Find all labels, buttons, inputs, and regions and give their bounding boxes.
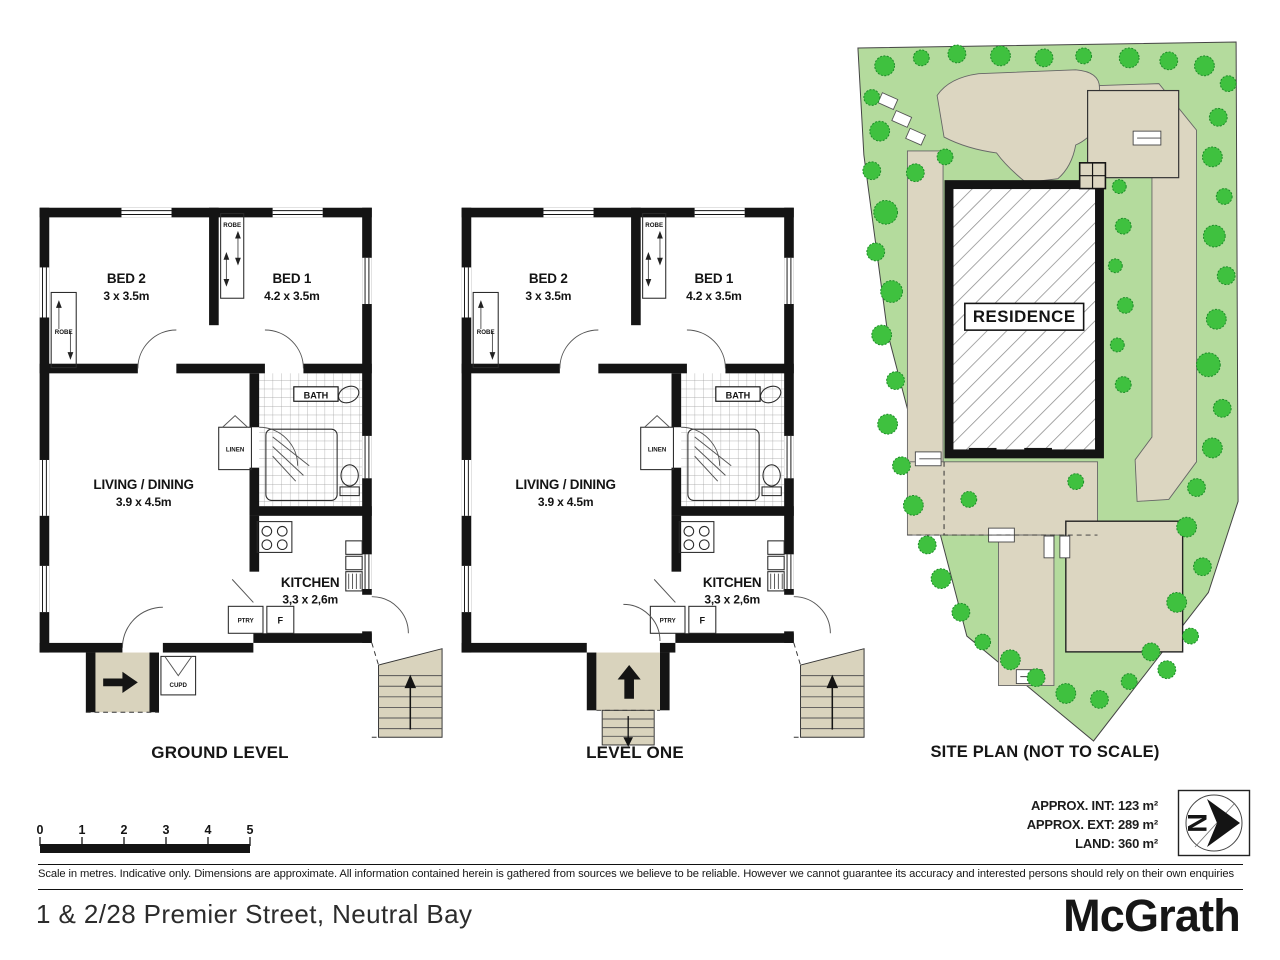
residence-block: RESIDENCE [949, 185, 1099, 454]
north-letter: N [1182, 813, 1212, 833]
living-name: LIVING / DINING [515, 477, 615, 492]
bath-label: BATH [304, 390, 329, 400]
north-compass-icon: N [1177, 789, 1251, 857]
bed1-name: BED 1 [273, 271, 312, 286]
kitchen-name: KITCHEN [281, 575, 340, 590]
site-plan-title: SITE PLAN (NOT TO SCALE) [905, 743, 1185, 762]
bed1-dims: 4.2 x 3.5m [686, 289, 742, 303]
cupboard-label: CUPD [170, 682, 188, 689]
area-internal: APPROX. INT: 123 m² [900, 796, 1158, 815]
bed1-dims: 4.2 x 3.5m [264, 289, 320, 303]
fridge-label: F [700, 616, 706, 626]
bed2-door [560, 330, 599, 369]
scale-tick-2: 2 [121, 823, 128, 837]
robe-left-label: ROBE [55, 329, 73, 336]
living-dims: 3.9 x 4.5m [538, 495, 594, 509]
external-stairs [372, 597, 442, 738]
bed1-door [265, 330, 304, 369]
kitchen-name: KITCHEN [703, 575, 762, 590]
floorplan-page: ROBE ROBE BED 2 3 x 3.5m BED 1 4.2 x 3.5… [0, 0, 1280, 960]
residence-label: RESIDENCE [973, 307, 1076, 326]
ground-level-title: GROUND LEVEL [110, 743, 330, 763]
bed2-door [138, 330, 177, 369]
scale-tick-1: 1 [79, 823, 86, 837]
level-one-floor-plan: ROBE ROBE BED 2 3 x 3.5m BED 1 4.2 x 3.5… [452, 198, 866, 747]
divider-top [38, 864, 1243, 865]
robe-left-label: ROBE [477, 329, 495, 336]
living-dims: 3.9 x 4.5m [116, 495, 172, 509]
site-plan: RESIDENCE [850, 36, 1246, 749]
scale-tick-0: 0 [37, 823, 44, 837]
bed2-name: BED 2 [107, 271, 146, 286]
scale-bar: 0 1 2 3 4 5 [34, 822, 262, 860]
area-external: APPROX. EXT: 289 m² [900, 815, 1158, 834]
kitchen-dims: 3,3 x 2,6m [282, 592, 338, 606]
fridge-label: F [278, 616, 284, 626]
living-name: LIVING / DINING [93, 477, 193, 492]
property-address: 1 & 2/28 Premier Street, Neutral Bay [36, 899, 472, 930]
bed2-dims: 3 x 3.5m [103, 289, 149, 303]
linen-label: LINEN [226, 446, 245, 453]
kitchen-dims: 3,3 x 2,6m [704, 592, 760, 606]
pantry-label: PTRY [238, 618, 254, 625]
bed2-dims: 3 x 3.5m [525, 289, 571, 303]
robe-mid-label: ROBE [645, 222, 663, 229]
mcgrath-logo: McGrath [1063, 890, 1240, 942]
scale-tick-4: 4 [205, 823, 212, 837]
disclaimer-text: Scale in metres. Indicative only. Dimens… [38, 868, 1243, 880]
bed1-name: BED 1 [695, 271, 734, 286]
area-land: LAND: 360 m² [900, 834, 1158, 853]
area-summary: APPROX. INT: 123 m² APPROX. EXT: 289 m² … [900, 796, 1158, 853]
robe-mid-label: ROBE [223, 222, 241, 229]
level-one-title: LEVEL ONE [525, 743, 745, 763]
bath-label: BATH [726, 390, 751, 400]
entry-porch [86, 607, 196, 712]
pantry-label: PTRY [660, 618, 676, 625]
scale-tick-3: 3 [163, 823, 170, 837]
bed2-name: BED 2 [529, 271, 568, 286]
bed1-door [687, 330, 726, 369]
linen-label: LINEN [648, 446, 667, 453]
ground-level-floor-plan: ROBE ROBE BED 2 3 x 3.5m BED 1 4.2 x 3.5… [30, 198, 444, 747]
scale-tick-5: 5 [247, 823, 254, 837]
